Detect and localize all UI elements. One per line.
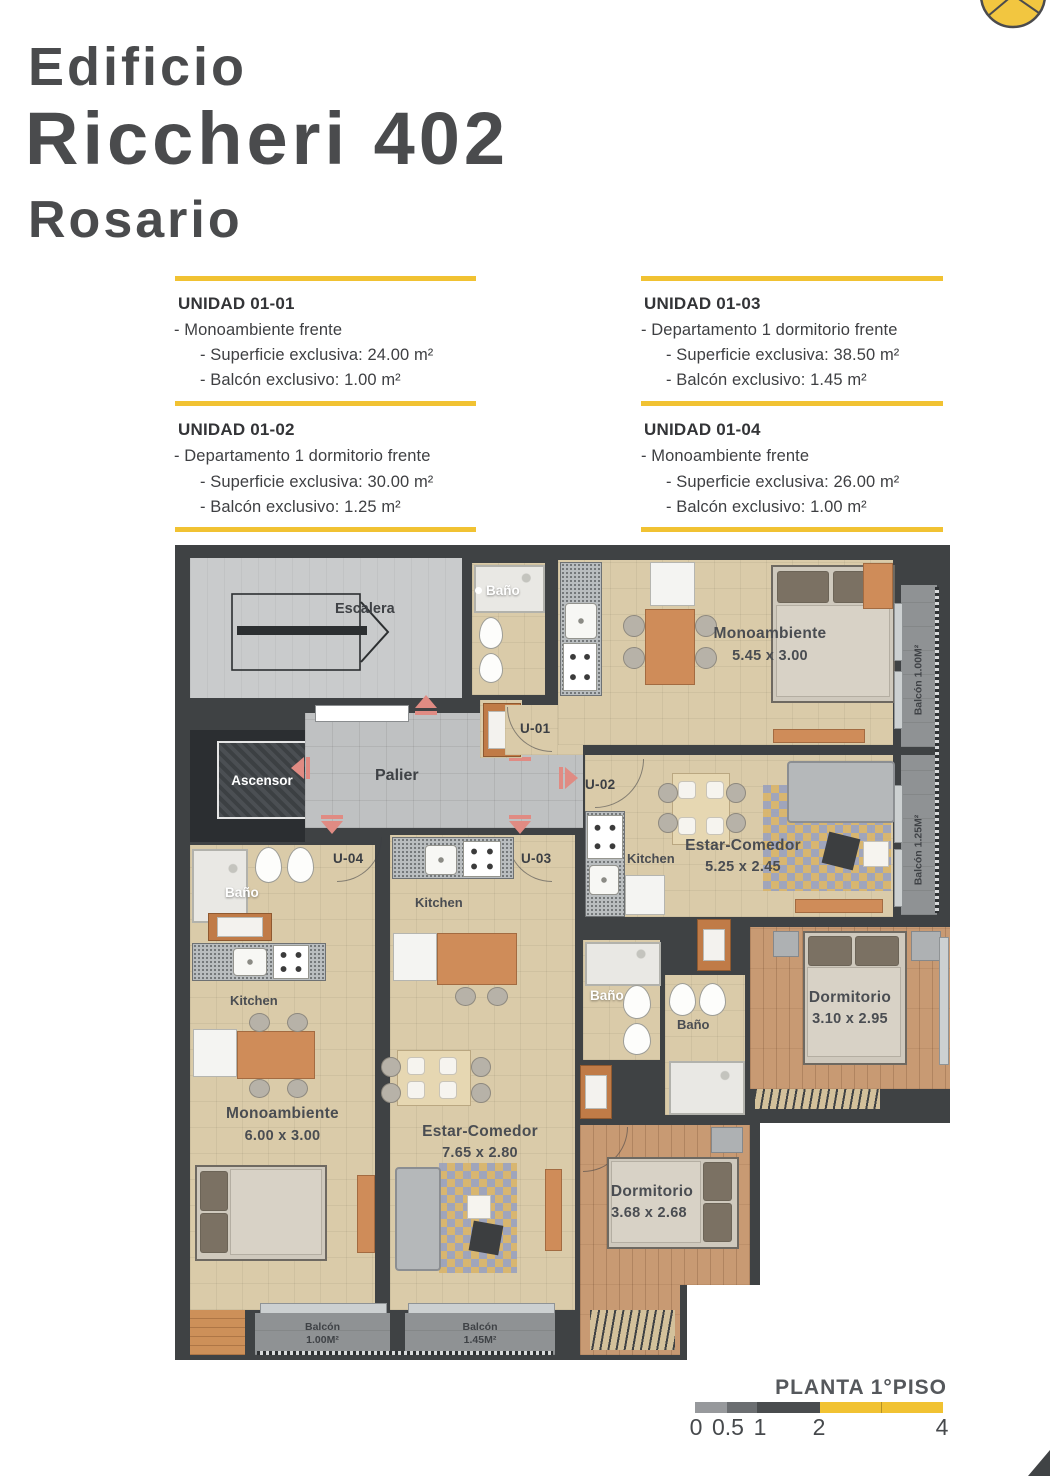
entry-arrow-icon — [509, 815, 531, 819]
unit-01-04-type: - Monoambiente frente — [641, 447, 809, 466]
bidet — [479, 653, 503, 683]
title-building: Edificio — [28, 36, 247, 98]
kitchen-sink — [565, 603, 597, 639]
window — [939, 937, 949, 1065]
unit-01-01-surface: - Superficie exclusiva: 24.00 m² — [200, 346, 433, 365]
stairs-arrow-icon — [190, 558, 462, 698]
title-city: Rosario — [28, 190, 243, 250]
chair — [471, 1083, 491, 1103]
entry-arrow-icon — [415, 711, 437, 715]
chair — [678, 781, 696, 799]
stove — [273, 945, 309, 979]
corner-triangle — [1028, 1450, 1050, 1476]
dining-table — [237, 1031, 315, 1079]
kitchen-label: Kitchen — [230, 993, 278, 1008]
unit-01-02-surface: - Superficie exclusiva: 30.00 m² — [200, 473, 433, 492]
bano-left-label: Baño — [225, 885, 259, 900]
plan-title: PLANTA 1°PISO — [660, 1376, 947, 1400]
chair — [439, 1057, 457, 1075]
bidet — [699, 983, 726, 1016]
room-dims: 5.45 x 3.00 — [670, 648, 870, 664]
tv-board — [545, 1169, 562, 1251]
balcony-label-wrap: Balcón 1.00M² — [903, 620, 933, 740]
unit-01-03-title: UNIDAD 01-03 — [644, 294, 761, 314]
kitchen-sink — [425, 845, 457, 875]
unit-01-01-title: UNIDAD 01-01 — [178, 294, 295, 314]
scale-tick: 2 — [811, 1414, 827, 1441]
chair — [706, 817, 724, 835]
chair — [407, 1081, 425, 1099]
unit-01-02-title: UNIDAD 01-02 — [178, 420, 295, 440]
door-u01-label: U-01 — [520, 721, 550, 736]
chair — [487, 987, 508, 1006]
chair — [678, 817, 696, 835]
escalera-label: Escalera — [335, 601, 395, 617]
unit-01-03-balcony: - Balcón exclusivo: 1.45 m² — [666, 371, 867, 390]
tv-board — [773, 729, 865, 743]
toilet — [623, 985, 651, 1019]
palier-label: Palier — [375, 767, 419, 785]
dot-icon — [475, 587, 482, 594]
scale-tick: 0 — [688, 1414, 704, 1441]
chair — [439, 1081, 457, 1099]
bano-mid-label: Baño — [590, 988, 624, 1003]
chair — [471, 1057, 491, 1077]
entry-arrow-icon — [559, 767, 563, 789]
divider-bar — [641, 527, 943, 532]
balcony-bl-line2: 1.00M² — [275, 1334, 370, 1347]
unit-01-04-surface: - Superficie exclusiva: 26.00 m² — [666, 473, 899, 492]
unit-01-04-title: UNIDAD 01-04 — [644, 420, 761, 440]
nightstand — [711, 1127, 743, 1153]
chair — [726, 813, 746, 833]
unit-01-02-type: - Departamento 1 dormitorio frente — [174, 447, 431, 466]
chair — [623, 647, 645, 669]
bidet — [287, 847, 314, 883]
room-label: Monoambiente — [670, 625, 870, 643]
stove — [587, 815, 623, 859]
vanity-sink — [217, 917, 263, 937]
vanity-sink — [585, 1075, 607, 1109]
room-ascensor: Ascensor — [217, 741, 307, 819]
plan-cutout — [687, 1285, 950, 1360]
logo-pie-icon — [973, 0, 1050, 45]
window — [894, 603, 903, 661]
unit-01-03-type: - Departamento 1 dormitorio frente — [641, 321, 898, 340]
sofa — [787, 761, 895, 823]
divider-bar — [641, 276, 943, 281]
entry-arrow-icon — [306, 757, 310, 779]
balcony-bl-line1: Balcón — [275, 1321, 370, 1334]
pillow — [808, 936, 852, 966]
entry-arrow-icon — [291, 757, 304, 779]
kitchen-sink — [589, 865, 619, 895]
chair — [381, 1057, 401, 1077]
entry-arrow-icon — [509, 821, 531, 834]
balcony-right-top-label: Balcón 1.00M² — [912, 645, 924, 716]
bano-mid2-label: Baño — [677, 1017, 710, 1032]
shower — [669, 1061, 745, 1115]
chair — [706, 781, 724, 799]
side-table — [467, 1195, 491, 1219]
divider-bar — [175, 401, 476, 406]
coffee-table — [469, 1221, 504, 1256]
toilet — [479, 617, 503, 649]
unit-01-03-surface: - Superficie exclusiva: 38.50 m² — [666, 346, 899, 365]
window — [894, 785, 903, 843]
scale-tick: 0.5 — [708, 1414, 748, 1441]
scale-tick-mark — [881, 1402, 882, 1413]
dining-table — [645, 609, 695, 685]
mattress — [230, 1169, 322, 1255]
chair — [381, 1083, 401, 1103]
sofa — [395, 1167, 441, 1271]
kitchen-label: Kitchen — [415, 895, 463, 910]
door-u02-label: U-02 — [585, 777, 615, 792]
room-label: Monoambiente — [195, 1105, 370, 1123]
wood-deck — [190, 1310, 245, 1355]
chair — [455, 987, 476, 1006]
chair — [249, 1079, 270, 1098]
entry-arrow-icon — [321, 815, 343, 819]
chair — [658, 813, 678, 833]
room-dims: 5.25 x 2.45 — [643, 859, 843, 875]
scale-segment — [727, 1402, 757, 1413]
divider-bar — [641, 401, 943, 406]
stair-door — [315, 705, 409, 722]
fridge — [625, 875, 665, 915]
room-label: Estar-Comedor — [390, 1123, 570, 1141]
pillow — [200, 1213, 228, 1253]
tv-board — [795, 899, 883, 913]
scale-tick: 1 — [752, 1414, 768, 1441]
tv-board — [357, 1175, 375, 1253]
balcony-railing — [257, 1351, 553, 1355]
room-label: Dormitorio — [770, 989, 930, 1007]
divider-bar — [175, 276, 476, 281]
bidet — [623, 1023, 651, 1055]
chair — [287, 1079, 308, 1098]
closet-hatch — [755, 1089, 880, 1109]
side-table — [863, 841, 889, 867]
entry-arrow-icon — [321, 821, 343, 834]
room-dims: 6.00 x 3.00 — [195, 1128, 370, 1144]
room-label: Estar-Comedor — [643, 837, 843, 855]
chair — [287, 1013, 308, 1032]
room-dims: 7.65 x 2.80 — [390, 1145, 570, 1161]
room-dims: 3.68 x 2.68 — [570, 1205, 728, 1221]
fridge — [393, 933, 437, 981]
mattress — [611, 1161, 701, 1243]
floor-plan: Escalera Ascensor Palier Baño U-01 — [175, 545, 950, 1360]
balcony-right-bottom-label: Balcón 1.25M² — [912, 815, 924, 886]
chair — [623, 615, 645, 637]
balcony-divider — [901, 747, 937, 755]
ascensor-label: Ascensor — [231, 773, 293, 788]
unit-01-01-balcony: - Balcón exclusivo: 1.00 m² — [200, 371, 401, 390]
chair — [407, 1057, 425, 1075]
unit-01-04-balcony: - Balcón exclusivo: 1.00 m² — [666, 498, 867, 517]
balcony-label-wrap: Balcón 1.25M² — [903, 790, 933, 910]
kitchen-sink — [233, 948, 267, 976]
toilet — [669, 983, 696, 1016]
toilet — [255, 847, 282, 883]
closet-hatch — [590, 1310, 675, 1350]
door-u04-label: U-04 — [333, 851, 363, 866]
scale-segment — [757, 1402, 820, 1413]
balcony-railing — [935, 587, 939, 913]
title-name: Riccheri 402 — [25, 96, 509, 181]
window — [894, 849, 903, 907]
bano-top-label: Baño — [486, 583, 520, 598]
room-dims: 3.10 x 2.95 — [770, 1011, 930, 1027]
fridge — [193, 1029, 237, 1077]
nightstand — [773, 931, 799, 957]
entry-arrow-icon — [415, 695, 437, 708]
unit-01-02-balcony: - Balcón exclusivo: 1.25 m² — [200, 498, 401, 517]
balcony-bm-line1: Balcón — [430, 1321, 530, 1334]
scale-tick: 4 — [934, 1414, 950, 1441]
chair — [249, 1013, 270, 1032]
scale-segment — [695, 1402, 727, 1413]
chair — [658, 783, 678, 803]
fridge — [650, 562, 695, 606]
stove — [463, 841, 501, 877]
wardrobe — [863, 563, 893, 609]
dining-table — [437, 933, 517, 985]
pillow — [777, 571, 829, 603]
pillow — [855, 936, 899, 966]
door-u03-label: U-03 — [521, 851, 551, 866]
divider-bar — [175, 527, 476, 532]
balcony-bm-line2: 1.45M² — [430, 1334, 530, 1347]
room-label: Dormitorio — [573, 1183, 731, 1201]
nightstand — [911, 931, 941, 961]
shower — [585, 942, 661, 986]
window — [894, 671, 903, 729]
chair — [726, 783, 746, 803]
stove — [563, 643, 597, 691]
pillow — [200, 1171, 228, 1211]
entry-arrow-icon — [565, 767, 578, 789]
unit-01-01-type: - Monoambiente frente — [174, 321, 342, 340]
vanity-sink — [703, 929, 725, 961]
